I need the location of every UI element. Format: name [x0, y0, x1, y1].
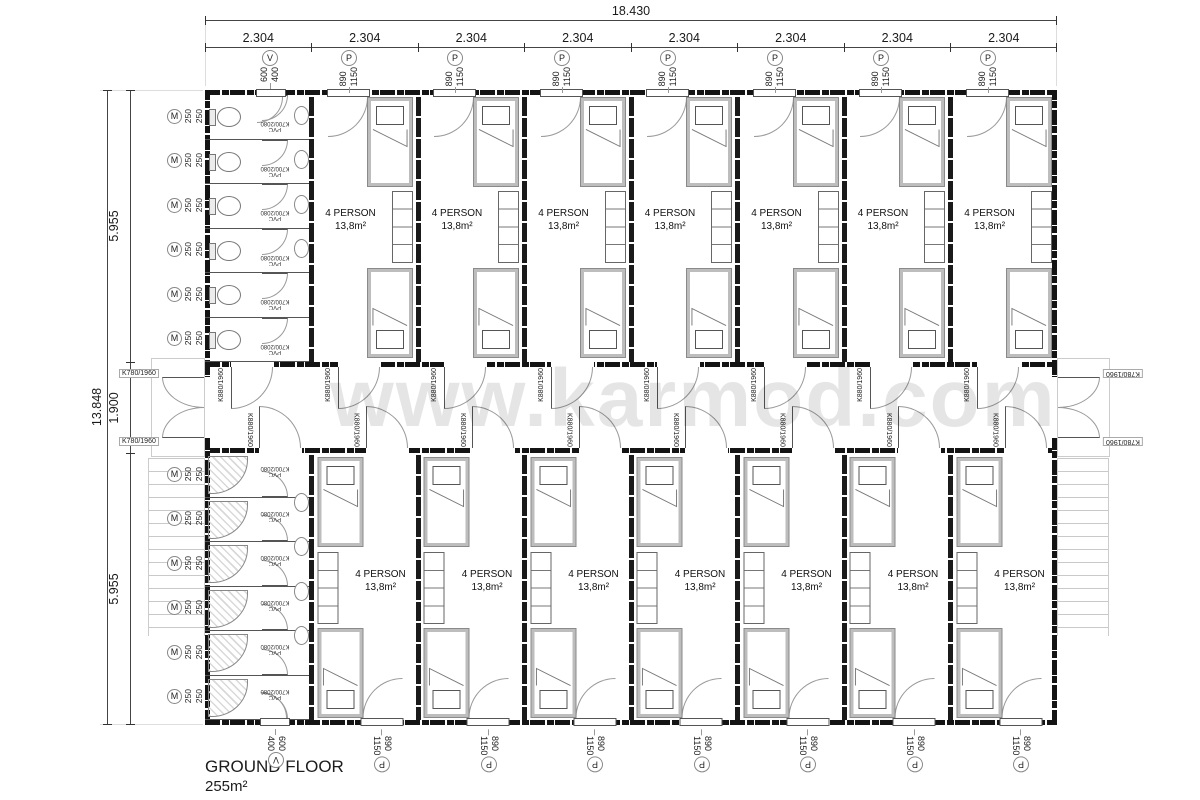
- room-label: 4 PERSON13,8m²: [663, 568, 737, 594]
- room: 4 PERSON13,8m²: [312, 453, 419, 720]
- exit-door-label: K780/1960: [1103, 437, 1143, 446]
- window-marker: P8901150: [549, 50, 575, 93]
- window-swing: [575, 678, 615, 718]
- room-door-label: K880/1960: [459, 413, 466, 447]
- panel-tag: M: [167, 287, 182, 302]
- window-swing: [967, 97, 1007, 137]
- blanket-fold: [904, 306, 940, 328]
- bed: [581, 98, 625, 186]
- bed: [474, 98, 518, 186]
- toilet-bowl: [217, 330, 241, 350]
- pillow: [965, 466, 993, 485]
- room-door-label: K880/1960: [325, 368, 332, 402]
- pillow: [859, 690, 887, 709]
- blanket-fold: [904, 127, 940, 149]
- wc-stall: PVCK700/2080: [205, 318, 312, 363]
- shower-tray: [208, 545, 248, 583]
- pillow: [752, 690, 780, 709]
- shower-stall: PVCK700/2080: [205, 676, 312, 721]
- panel-tag: M: [167, 153, 182, 168]
- room-door: [657, 367, 699, 409]
- window: [680, 718, 723, 726]
- extension-line: [100, 724, 203, 725]
- bed: [1007, 98, 1051, 186]
- plan-area: 255m²: [205, 778, 248, 795]
- bed: [318, 629, 362, 717]
- bed: [318, 458, 362, 546]
- toilet-bowl: [217, 107, 241, 127]
- panel-tag: M: [167, 198, 182, 213]
- blanket-fold: [748, 666, 784, 688]
- floor-plan-sheet: 18.430 2.304 2.304 2.304 2.304 2.304 2.3…: [0, 0, 1200, 800]
- room-label: 4 PERSON13,8m²: [876, 568, 950, 594]
- room-door-label: K880/1960: [644, 368, 651, 402]
- panel-marker: M250250: [167, 600, 204, 615]
- pillow: [482, 106, 510, 125]
- blanket-fold: [372, 306, 408, 328]
- room-door: [338, 367, 380, 409]
- wardrobe: [637, 552, 658, 624]
- room-door-label: K880/1960: [431, 368, 438, 402]
- corridor-bay: K880/1960K880/1960: [205, 367, 312, 448]
- room: 4 PERSON13,8m²: [312, 95, 419, 362]
- bed: [531, 629, 575, 717]
- wardrobe: [317, 552, 338, 624]
- room-label: 4 PERSON13,8m²: [846, 207, 920, 233]
- bed: [744, 458, 788, 546]
- panel-marker: M250250: [167, 645, 204, 660]
- room: 4 PERSON13,8m²: [418, 453, 525, 720]
- window-marker: P8901150: [902, 729, 928, 772]
- wardrobe: [818, 191, 839, 263]
- panel-tag: M: [167, 331, 182, 346]
- room-label: 4 PERSON13,8m²: [557, 568, 631, 594]
- blanket-fold: [322, 666, 358, 688]
- pillow: [326, 466, 354, 485]
- window: [786, 718, 829, 726]
- window-tag: P: [374, 756, 390, 772]
- ramp-right: [1057, 458, 1109, 636]
- window-swing: [434, 97, 474, 137]
- window-marker: P8901150: [336, 50, 362, 93]
- cabin-door-label: PVCK700/2080: [253, 209, 297, 221]
- window-tag: P: [554, 50, 570, 66]
- blanket-fold: [961, 666, 997, 688]
- total-width-dim: 18.430: [205, 4, 1057, 18]
- pillow: [376, 106, 404, 125]
- room-label: 4 PERSON13,8m²: [420, 207, 494, 233]
- room-door-label: K880/1960: [857, 368, 864, 402]
- window-tag: P: [660, 50, 676, 66]
- room-door-label: K880/1960: [779, 413, 786, 447]
- blanket-fold: [798, 127, 834, 149]
- segment-dim: 2.304: [525, 31, 632, 45]
- corridor-bay: K880/1960K880/1960: [951, 367, 1058, 448]
- room-door: [977, 367, 1019, 409]
- room-door: [472, 406, 514, 448]
- cabin-door-label: PVCK700/2080: [253, 465, 297, 477]
- room: 4 PERSON13,8m²: [738, 95, 845, 362]
- door-opening: [366, 448, 409, 453]
- room-label: 4 PERSON13,8m²: [953, 207, 1027, 233]
- blanket-fold: [798, 306, 834, 328]
- room-door-label: K880/1960: [218, 368, 225, 402]
- wash-basin: [294, 582, 309, 601]
- wash-basin: [294, 106, 309, 125]
- window-marker: P8901150: [442, 50, 468, 93]
- panel-tag: M: [167, 600, 182, 615]
- blanket-fold: [478, 306, 514, 328]
- wardrobe: [424, 552, 445, 624]
- toilet-tank: [209, 198, 216, 215]
- bed: [581, 269, 625, 357]
- door-opening: [898, 448, 941, 453]
- cabin-door-label: PVCK700/2080: [253, 120, 297, 132]
- extension-line: [100, 90, 203, 91]
- panel-marker: M250250: [167, 198, 204, 213]
- blanket-fold: [535, 666, 571, 688]
- panel-marker: M250250: [167, 511, 204, 526]
- panel-marker: M250250: [167, 242, 204, 257]
- cabin-door-label: PVCK700/2080: [253, 599, 297, 611]
- blanket-fold: [429, 487, 465, 509]
- corridor-bay: K880/1960K880/1960: [844, 367, 951, 448]
- room-label: 4 PERSON13,8m²: [770, 568, 844, 594]
- window-swing: [682, 678, 722, 718]
- room-door-label: K880/1960: [566, 413, 573, 447]
- window-tag: P: [587, 756, 603, 772]
- bed: [531, 458, 575, 546]
- panel-tag: M: [167, 109, 182, 124]
- segment-dim: 2.304: [951, 31, 1058, 45]
- window-tag: P: [694, 756, 710, 772]
- shower-stall: PVCK700/2080: [205, 453, 312, 498]
- window-tag: P: [767, 50, 783, 66]
- segment-dimline: 2.304 2.304 2.304 2.304 2.304 2.304 2.30…: [205, 47, 1057, 57]
- bed: [425, 458, 469, 546]
- cabin-door: [262, 318, 288, 344]
- pillow: [646, 690, 674, 709]
- vent-window: [256, 89, 286, 97]
- room-door: [231, 367, 273, 409]
- corridor-bay: K880/1960K880/1960: [631, 367, 738, 448]
- room-label: 4 PERSON13,8m²: [740, 207, 814, 233]
- room-door: [685, 406, 727, 448]
- pillow: [695, 106, 723, 125]
- window-tag: P: [341, 50, 357, 66]
- door-opening: [579, 448, 622, 453]
- cabin-door-label: PVCK700/2080: [253, 343, 297, 355]
- toilet-bowl: [217, 285, 241, 305]
- segment-dim: 2.304: [738, 31, 845, 45]
- window-tag: P: [800, 756, 816, 772]
- bed: [368, 269, 412, 357]
- corridor-bay: K880/1960K880/1960: [738, 367, 845, 448]
- room: 4 PERSON13,8m²: [738, 453, 845, 720]
- window-swing: [788, 678, 828, 718]
- blanket-fold: [961, 487, 997, 509]
- panel-marker: M250250: [167, 689, 204, 704]
- building: PVCK700/2080 PVCK700/2080 PVCK700/2080 P…: [205, 90, 1057, 725]
- cabin-door: [262, 95, 288, 121]
- window-swing: [469, 678, 509, 718]
- room: 4 PERSON13,8m²: [844, 95, 951, 362]
- pillow: [695, 330, 723, 349]
- window-marker: P8901150: [476, 729, 502, 772]
- window-marker: P8901150: [689, 729, 715, 772]
- segment-dim: 2.304: [844, 31, 951, 45]
- toilet-tank: [209, 109, 216, 126]
- cabin-door-label: PVCK700/2080: [253, 298, 297, 310]
- wc-module: PVCK700/2080 PVCK700/2080 PVCK700/2080 P…: [205, 95, 312, 362]
- room-door-label: K880/1960: [964, 368, 971, 402]
- room-door: [870, 367, 912, 409]
- wardrobe: [743, 552, 764, 624]
- room-door: [1005, 406, 1047, 448]
- window: [999, 718, 1042, 726]
- window-marker: P8901150: [762, 50, 788, 93]
- panel-tag: M: [167, 242, 182, 257]
- panel-tag: M: [167, 511, 182, 526]
- wardrobe: [924, 191, 945, 263]
- pillow: [326, 690, 354, 709]
- room: 4 PERSON13,8m²: [418, 95, 525, 362]
- room-label: 4 PERSON13,8m²: [344, 568, 418, 594]
- window: [467, 718, 510, 726]
- exit-door-label: K780/1960: [119, 437, 159, 446]
- room-door-label: K880/1960: [751, 368, 758, 402]
- window-marker: P8901150: [582, 729, 608, 772]
- toilet-bowl: [217, 152, 241, 172]
- corridor-bay: K880/1960K880/1960: [525, 367, 632, 448]
- section-dim: 5.955: [107, 573, 121, 604]
- room: 4 PERSON13,8m²: [951, 95, 1058, 362]
- room: 4 PERSON13,8m²: [525, 95, 632, 362]
- pillow: [802, 106, 830, 125]
- shower-module: PVCK700/2080 PVCK700/2080 PVCK700/2080 P…: [205, 453, 312, 720]
- pillow: [965, 690, 993, 709]
- blanket-fold: [748, 487, 784, 509]
- room-door-label: K880/1960: [353, 413, 360, 447]
- segment-dim: 2.304: [205, 31, 312, 45]
- blanket-fold: [642, 666, 678, 688]
- vent-window: [260, 718, 290, 726]
- pillow: [646, 466, 674, 485]
- toilet-tank: [209, 243, 216, 260]
- bed: [851, 458, 895, 546]
- bed: [794, 269, 838, 357]
- section-dim: 5.955: [107, 210, 121, 241]
- panel-tag: M: [167, 689, 182, 704]
- window: [893, 718, 936, 726]
- room-door-label: K880/1960: [538, 368, 545, 402]
- vent-tag: V: [268, 752, 284, 768]
- bed: [900, 269, 944, 357]
- toilet-tank: [209, 154, 216, 171]
- window-swing: [754, 97, 794, 137]
- blanket-fold: [585, 306, 621, 328]
- cabin-door-label: PVCK700/2080: [253, 554, 297, 566]
- cabin-door: [262, 140, 288, 166]
- panel-marker: M250250: [167, 331, 204, 346]
- bed: [900, 98, 944, 186]
- room-door-label: K880/1960: [246, 413, 253, 447]
- shower-tray: [208, 590, 248, 628]
- pillow: [908, 330, 936, 349]
- toilet-bowl: [217, 241, 241, 261]
- wardrobe: [605, 191, 626, 263]
- window-marker: P8901150: [868, 50, 894, 93]
- window-tag: P: [447, 50, 463, 66]
- segment-dim: 2.304: [631, 31, 738, 45]
- bed: [638, 629, 682, 717]
- pillow: [539, 690, 567, 709]
- room-door: [764, 367, 806, 409]
- panel-marker: M250250: [167, 287, 204, 302]
- wardrobe: [711, 191, 732, 263]
- cabin-door: [262, 229, 288, 255]
- blanket-fold: [535, 487, 571, 509]
- panel-marker: M250250: [167, 556, 204, 571]
- total-width-dimline: [205, 20, 1057, 21]
- exit-door-label: K780/1960: [1103, 369, 1143, 378]
- room-door: [579, 406, 621, 448]
- window-marker: P8901150: [655, 50, 681, 93]
- panel-marker: M250250: [167, 467, 204, 482]
- blanket-fold: [855, 666, 891, 688]
- panel-tag: M: [167, 645, 182, 660]
- blanket-fold: [855, 487, 891, 509]
- room-door: [898, 406, 940, 448]
- vent-tag: V: [262, 50, 278, 66]
- cabin-door: [262, 273, 288, 299]
- corridor-bay: K880/1960K880/1960: [312, 367, 419, 448]
- pillow: [589, 106, 617, 125]
- window-swing: [860, 97, 900, 137]
- window-marker: P8901150: [369, 729, 395, 772]
- bed: [368, 98, 412, 186]
- window-swing: [541, 97, 581, 137]
- wardrobe: [956, 552, 977, 624]
- pillow: [802, 330, 830, 349]
- room-door: [259, 406, 301, 448]
- bed: [638, 458, 682, 546]
- door-opening: [472, 448, 515, 453]
- cabin-door-label: PVCK700/2080: [253, 254, 297, 266]
- pillow: [376, 330, 404, 349]
- shower-tray: [208, 501, 248, 539]
- wardrobe: [1031, 191, 1052, 263]
- door-opening: [1052, 377, 1057, 438]
- blanket-fold: [1011, 306, 1047, 328]
- bottom-section: PVCK700/2080 PVCK700/2080 PVCK700/2080 P…: [205, 453, 1057, 720]
- window-tag: P: [1013, 756, 1029, 772]
- panel-marker: M250250: [167, 109, 204, 124]
- room: 4 PERSON13,8m²: [951, 453, 1058, 720]
- window-tag: P: [907, 756, 923, 772]
- vent-marker: V600400: [257, 50, 283, 89]
- corridor: K780/1960 K780/1960 K780/1960 K780/1960 …: [205, 367, 1057, 448]
- toilet-bowl: [217, 196, 241, 216]
- room-door-label: K880/1960: [992, 413, 999, 447]
- wash-basin: [294, 493, 309, 512]
- window-swing: [328, 97, 368, 137]
- window-tag: P: [980, 50, 996, 66]
- wardrobe: [530, 552, 551, 624]
- pillow: [539, 466, 567, 485]
- panel-tag: M: [167, 556, 182, 571]
- window-swing: [362, 678, 402, 718]
- window-tag: P: [873, 50, 889, 66]
- room-door: [444, 367, 486, 409]
- room-door: [551, 367, 593, 409]
- shower-tray: [208, 679, 248, 717]
- bed: [474, 269, 518, 357]
- blanket-fold: [322, 487, 358, 509]
- wash-basin: [294, 537, 309, 556]
- window-swing: [1001, 678, 1041, 718]
- cabin-door-label: PVCK700/2080: [253, 165, 297, 177]
- blanket-fold: [691, 127, 727, 149]
- door-opening: [205, 377, 210, 438]
- blanket-fold: [429, 666, 465, 688]
- pillow: [433, 690, 461, 709]
- wash-basin: [294, 239, 309, 258]
- pillow: [859, 466, 887, 485]
- toilet-tank: [209, 287, 216, 304]
- total-height-dim: 13.848: [90, 388, 104, 426]
- bed: [794, 98, 838, 186]
- window-swing: [647, 97, 687, 137]
- bed: [687, 269, 731, 357]
- room-door-label: K880/1960: [672, 413, 679, 447]
- wash-basin: [294, 626, 309, 645]
- segment-dim: 2.304: [312, 31, 419, 45]
- pillow: [1015, 106, 1043, 125]
- cabin-door: [262, 184, 288, 210]
- window-tag: P: [481, 756, 497, 772]
- blanket-fold: [691, 306, 727, 328]
- pillow: [482, 330, 510, 349]
- wash-basin: [294, 150, 309, 169]
- shower-tray: [208, 634, 248, 672]
- blanket-fold: [372, 127, 408, 149]
- room-label: 4 PERSON13,8m²: [633, 207, 707, 233]
- window-marker: P8901150: [975, 50, 1001, 93]
- blanket-fold: [642, 487, 678, 509]
- vent-marker: V600400: [263, 729, 289, 768]
- room: 4 PERSON13,8m²: [525, 453, 632, 720]
- pillow: [589, 330, 617, 349]
- blanket-fold: [478, 127, 514, 149]
- bed: [957, 458, 1001, 546]
- section-dimline: 5.955 1.900 5.955: [130, 90, 140, 725]
- window-marker: P8901150: [795, 729, 821, 772]
- room: 4 PERSON13,8m²: [844, 453, 951, 720]
- panel-tag: M: [167, 467, 182, 482]
- cabin-door-label: PVCK700/2080: [253, 510, 297, 522]
- door-opening: [259, 448, 302, 453]
- blanket-fold: [1011, 127, 1047, 149]
- room: 4 PERSON13,8m²: [631, 95, 738, 362]
- shower-tray: [208, 456, 248, 494]
- toilet-tank: [209, 332, 216, 349]
- segment-dim: 2.304: [418, 31, 525, 45]
- bed: [744, 629, 788, 717]
- cabin-door-label: PVCK700/2080: [253, 643, 297, 655]
- corridor-bay: K880/1960K880/1960: [418, 367, 525, 448]
- bed: [1007, 269, 1051, 357]
